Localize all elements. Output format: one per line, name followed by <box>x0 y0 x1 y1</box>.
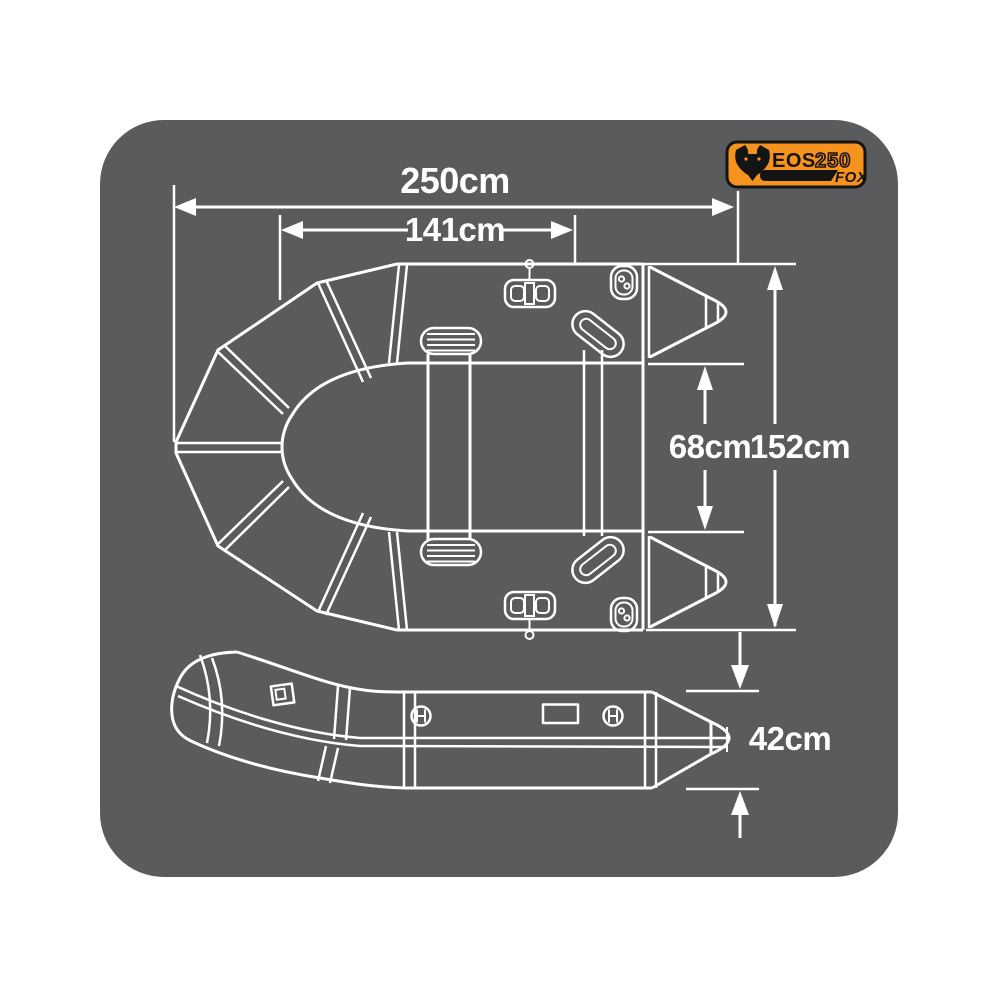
badge-model-text: EOS <box>772 150 816 172</box>
fox-eye-left <box>744 157 747 160</box>
fox-eye-right <box>757 157 760 160</box>
inner-length-label: 141cm <box>405 211 505 248</box>
inner-width-label: 68cm <box>669 428 751 465</box>
boat-dimension-diagram: 250cm 141cm 152cm 68cm 42cm <box>0 0 1000 1000</box>
diagram-canvas: 250cm 141cm 152cm 68cm 42cm <box>0 0 1000 1000</box>
badge-bar <box>760 170 838 181</box>
overall-width-label: 152cm <box>750 428 850 465</box>
fox-badge: EOS 250 FOX <box>727 142 868 187</box>
badge-brand-text: FOX <box>835 169 868 186</box>
overall-length-label: 250cm <box>400 160 510 201</box>
tube-height-label: 42cm <box>749 720 831 757</box>
